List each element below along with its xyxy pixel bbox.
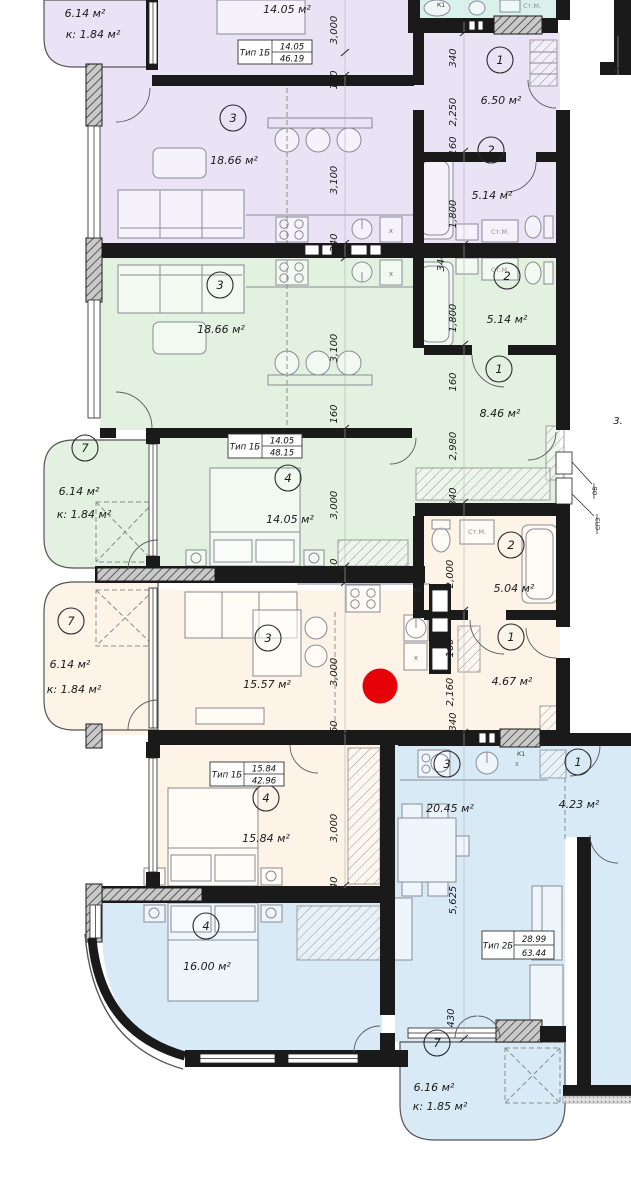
dim-label: 340 [329,558,340,577]
area-purple-hall: 6.50 м² [481,94,522,107]
area-cream-living: 15.57 м² [243,678,291,691]
area-blue-living: 20.45 м² [426,802,474,815]
roomnum-green-living: 3 [216,278,223,292]
riser-label-k1: К1 [437,2,445,9]
area-blue-balcony: 6.16 м² [414,1081,455,1094]
dim-label-partial: 3. [613,416,623,427]
room-blue-right [590,837,631,1087]
roomnum-purple-hall: 1 [496,53,503,67]
roomnum-cream-living: 3 [264,631,271,645]
dim-label: 160 [448,372,459,391]
dim-label: 3,000 [329,658,340,687]
svg-text:15.84: 15.84 [252,765,276,775]
dim-label: 340 [436,252,447,271]
svg-text:Тип 1Б: Тип 1Б [240,49,270,59]
svg-text:14.05: 14.05 [270,437,294,447]
washer-label: Ст.М. [468,528,486,536]
roomnum-purple-living: 3 [229,111,236,125]
dim-label: 160 [448,136,459,155]
floor-plan-page: 14.05 м² 18.66 м² 6.50 м² 5.14 м² 6.14 м… [0,0,631,1200]
coef-green-balcony: к: 1.84 м² [57,508,112,521]
roomnum-purple-bath: 2 [487,143,494,157]
dim-label: 430 [446,1008,457,1027]
dim-label: 160 [329,720,340,739]
dim-label: 3,100 [329,166,340,195]
dim-label: 1,800 [448,304,459,333]
svg-text:28.99: 28.99 [522,935,546,945]
svg-text:Тип 1Б: Тип 1Б [230,443,260,453]
svg-text:14.05: 14.05 [280,43,304,53]
roomnum-green-bedroom: 4 [284,471,291,485]
roomnum-blue-balcony: 7 [433,1036,441,1050]
balcony-cream [44,582,158,730]
roomnum-blue-living: 3 [443,757,450,771]
area-blue-hall: 4.23 м² [559,798,600,811]
svg-text:63.44: 63.44 [522,949,546,959]
area-green-living: 18.66 м² [197,323,245,336]
svg-text:46.19: 46.19 [280,55,304,65]
area-cream-balcony: 6.14 м² [50,658,91,671]
type-table-cream: Тип 1Б 15.84 42.96 [210,762,284,787]
riser-label-k1: К1 [517,751,525,758]
svg-text:Тип 2Б: Тип 2Б [483,942,513,952]
area-blue-bedroom: 16.00 м² [183,960,231,973]
area-cream-hall: 4.67 м² [492,675,533,688]
dim-label: 2,250 [448,98,459,127]
dim-label: 3,000 [329,814,340,843]
dim-label: 160 [329,404,340,423]
dim-label: 3,000 [329,491,340,520]
dim-label: 1,800 [448,200,459,229]
area-cream-bath: 5.04 м² [494,582,535,595]
dim-label: 290 [620,50,631,69]
area-cream-bedroom: 15.84 м² [242,832,290,845]
dim-label: 5,625 [448,886,459,915]
roomnum-cream-hall: 1 [507,630,514,644]
coef-cream-balcony: к: 1.84 м² [47,683,102,696]
dim-label: 340 [329,876,340,895]
roomnum-cream-balcony: 7 [67,614,75,628]
dim-label: 340 [329,233,340,252]
washer-label: Ст.М. [523,2,541,10]
dim-label: 340 [448,712,459,731]
sink-x-mark: х [414,654,418,662]
red-marker [363,669,398,704]
area-green-balcony: 6.14 м² [59,485,100,498]
roomnum-green-balcony: 7 [81,441,89,455]
dim-label: 2,000 [445,560,456,589]
svg-text:48.15: 48.15 [270,449,294,459]
riser-label-k1: К1 [413,587,421,594]
dim-label: 2,980 [448,432,459,461]
roomnum-green-hall: 1 [495,362,502,376]
sink-x-mark: х [389,270,393,278]
coef-purple-balcony: к: 1.84 м² [66,28,121,41]
washer-label: Ст.М. [491,228,509,236]
sink-x-mark: х [389,227,393,235]
washer-label: Ст.М. [491,266,509,274]
svg-text:Тип 1Б: Тип 1Б [212,771,242,781]
area-purple-living: 18.66 м² [210,154,258,167]
area-green-bath: 5.14 м² [487,313,528,326]
roomnum-cream-bedroom: 4 [262,791,269,805]
area-green-hall: 8.46 м² [480,407,521,420]
dim-label: 3,000 [329,16,340,45]
floor-plan-svg: 14.05 м² 18.66 м² 6.50 м² 5.14 м² 6.14 м… [0,0,631,1200]
dim-label: 160 [445,638,456,657]
roomnum-cream-bath: 2 [507,538,514,552]
area-purple-bath: 5.14 м² [472,189,513,202]
type-table-green: Тип 1Б 14.05 48.15 [228,434,302,459]
balcony-green [44,440,156,568]
type-table-blue: Тип 2Б 28.99 63.44 [482,931,554,959]
roomnum-blue-bedroom: 4 [202,919,209,933]
svg-text:42.96: 42.96 [252,777,277,787]
dim-label: 340 [448,48,459,67]
roomnum-blue-hall: 1 [574,755,581,769]
area-purple-balcony: 6.14 м² [65,7,106,20]
dim-label: 160 [329,70,340,89]
riser-label-spz: СПЗ [595,518,602,531]
sink-x-mark: х [515,760,519,768]
coef-blue-balcony: к: 1.85 м² [413,1100,468,1113]
area-purple-bedroom: 14.05 м² [263,3,311,16]
type-table-purple: Тип 1Б 14.05 46.19 [238,40,312,65]
dim-label: 3,100 [329,334,340,363]
dim-label: 340 [448,487,459,506]
riser-label-ov: ОВ [592,487,599,496]
dim-label: 2,160 [445,678,456,707]
area-green-bedroom: 14.05 м² [266,513,314,526]
